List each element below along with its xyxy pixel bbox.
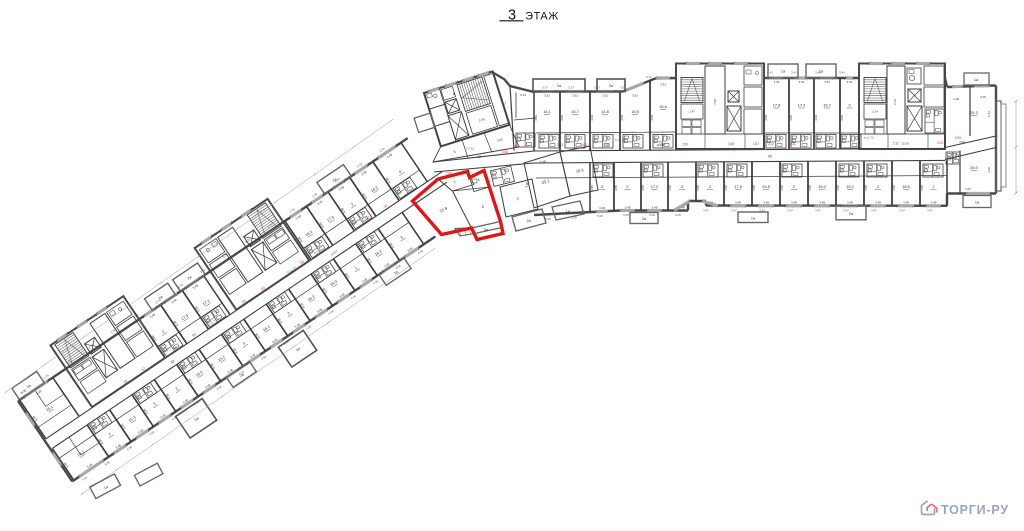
svg-text:2.14: 2.14 [872,110,878,114]
svg-text:3.49: 3.49 [652,205,658,209]
svg-text:17.3: 17.3 [798,103,806,108]
svg-text:17.8: 17.8 [773,103,781,108]
svg-text:3.41: 3.41 [791,71,797,75]
svg-text:17.6: 17.6 [734,184,742,189]
svg-text:5.06: 5.06 [675,213,681,217]
svg-text:2.14: 2.14 [893,99,897,105]
svg-text:3.49: 3.49 [819,201,825,205]
svg-text:5.06: 5.06 [623,213,629,217]
svg-text:16.0: 16.0 [818,184,826,189]
svg-text:210: 210 [937,141,943,145]
svg-text:3: 3 [848,103,850,108]
svg-text:5.06: 5.06 [545,217,551,221]
svg-text:3: 3 [681,184,683,189]
svg-text:A2: A2 [477,155,481,159]
svg-text:4.32: 4.32 [987,167,991,173]
svg-text:3.51: 3.51 [847,80,853,84]
svg-text:16.2: 16.2 [823,103,831,108]
svg-text:+2.70: +2.70 [466,147,475,151]
svg-text:3.49: 3.49 [735,201,741,205]
svg-text:3.49: 3.49 [791,201,797,205]
svg-text:1.09: 1.09 [953,97,959,101]
svg-text:7: 7 [504,102,506,106]
svg-text:14.8: 14.8 [601,109,609,114]
svg-text:4.55: 4.55 [892,185,896,191]
svg-text:24.3: 24.3 [970,110,978,115]
svg-text:3: 3 [601,184,603,189]
svg-text:42: 42 [768,155,772,159]
svg-text:4.09: 4.09 [650,115,654,121]
svg-text:3.49: 3.49 [931,201,937,205]
svg-text:3.47: 3.47 [703,209,709,213]
svg-text:4.09: 4.09 [789,115,793,121]
svg-text:106: 106 [502,150,508,154]
svg-text:4.55: 4.55 [808,185,812,191]
svg-text:3.51: 3.51 [824,80,830,84]
svg-text:26.0: 26.0 [970,165,978,170]
svg-text:h=2.70: h=2.70 [864,136,874,140]
svg-text:2: 2 [932,184,934,189]
svg-text:3.51: 3.51 [544,94,550,98]
svg-text:211: 211 [893,141,899,145]
svg-text:209: 209 [955,136,961,140]
svg-text:158: 158 [728,142,734,146]
svg-text:3.49: 3.49 [903,201,909,205]
svg-text:3.47: 3.47 [899,209,905,213]
svg-text:3.41: 3.41 [839,71,845,75]
svg-text:2: 2 [709,184,711,189]
svg-text:3.13: 3.13 [520,93,526,97]
svg-text:4.55: 4.55 [920,185,924,191]
svg-text:3.51: 3.51 [602,94,608,98]
svg-text:3.47: 3.47 [731,209,737,213]
svg-text:3.49: 3.49 [625,205,631,209]
svg-text:ЭТАЖ: ЭТАЖ [525,11,559,23]
svg-text:ТОРГИ-РУ: ТОРГИ-РУ [941,503,1009,517]
svg-text:16.1: 16.1 [543,109,551,114]
svg-text:3.47: 3.47 [927,209,933,213]
svg-text:7.00: 7.00 [713,99,717,105]
svg-text:2: 2 [626,184,628,189]
svg-text:4.09: 4.09 [840,115,844,121]
svg-text:5.06: 5.06 [597,214,603,218]
svg-text:159: 159 [682,142,688,146]
svg-text:3.51: 3.51 [799,80,805,84]
svg-text:15.2: 15.2 [846,184,854,189]
svg-text:4.55: 4.55 [668,185,672,191]
svg-text:2: 2 [877,184,879,189]
svg-text:3.69: 3.69 [959,140,965,144]
svg-text:3.37: 3.37 [568,86,574,90]
svg-text:4.55: 4.55 [641,185,645,191]
svg-text:5.72: 5.72 [987,111,991,117]
svg-text:4.55: 4.55 [696,185,700,191]
svg-text:157: 157 [753,142,759,146]
svg-text:3.37: 3.37 [542,86,548,90]
svg-text:3.47: 3.47 [815,209,821,213]
svg-text:3.47: 3.47 [871,209,877,213]
svg-text:4.55: 4.55 [724,185,728,191]
svg-text:18.6: 18.6 [902,184,910,189]
svg-text:4.09: 4.09 [814,115,818,121]
svg-text:2: 2 [793,184,795,189]
svg-text:13.30: 13.30 [901,142,909,146]
svg-text:3.51: 3.51 [660,83,666,87]
svg-text:4.55: 4.55 [752,185,756,191]
svg-text:3.51: 3.51 [572,94,578,98]
svg-text:4.09: 4.09 [590,115,594,121]
svg-text:3.37: 3.37 [646,75,652,79]
svg-text:5.06: 5.06 [649,213,655,217]
svg-text:3.49: 3.49 [875,201,881,205]
svg-text:17.0: 17.0 [651,184,659,189]
svg-text:2.47: 2.47 [689,110,695,114]
svg-text:3.49: 3.49 [599,206,605,210]
svg-text:15.6: 15.6 [659,104,667,109]
svg-text:4.09: 4.09 [560,115,564,121]
svg-text:3.49: 3.49 [847,201,853,205]
svg-text:4.57: 4.57 [965,187,971,191]
svg-text:15.8: 15.8 [631,109,639,114]
svg-text:15.7: 15.7 [571,109,579,114]
svg-text:3.47: 3.47 [787,209,793,213]
svg-text:23.8: 23.8 [762,184,770,189]
svg-text:4.55: 4.55 [864,185,868,191]
svg-text:4.09: 4.09 [620,115,624,121]
svg-text:4.55: 4.55 [780,185,784,191]
svg-text:105: 105 [513,144,519,148]
svg-text:4.55: 4.55 [590,185,594,191]
svg-text:3.49: 3.49 [763,201,769,205]
svg-text:4.79: 4.79 [980,95,986,99]
svg-text:3.51: 3.51 [774,80,780,84]
svg-text:3.51: 3.51 [632,94,638,98]
svg-text:4.55: 4.55 [614,185,618,191]
svg-text:4.55: 4.55 [836,185,840,191]
